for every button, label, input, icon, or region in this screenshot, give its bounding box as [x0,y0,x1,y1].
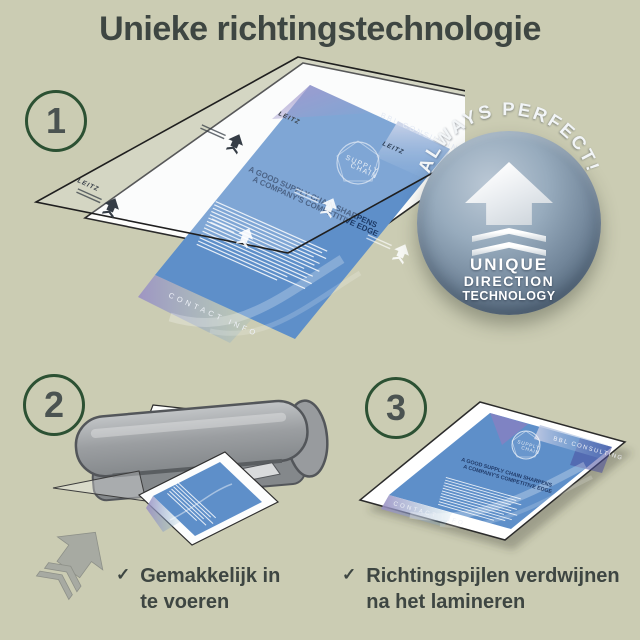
supply-chain-logo: SUPPLY CHAIN [512,431,541,459]
infographic: Unieke richtingstechnologie 1 2 3 [0,0,640,640]
feed-arrow-icon [32,516,118,606]
caption-text: Richtingspijlen verdwijnen na het lamine… [366,563,619,615]
step-2-number: 2 [44,384,64,426]
step-1-illustration: BBL CONSULTING SUPPLY CHAIN A GOOD SUPPL… [20,55,465,365]
caption-easy-feed: ✓ Gemakkelijk in te voeren [116,563,331,615]
caption-arrows-disappear: ✓ Richtingspijlen verdwijnen na het lami… [342,563,637,615]
badge-line-direction: DIRECTION [417,273,601,289]
step-2-badge: 2 [23,374,85,436]
page-title: Unieke richtingstechnologie [0,10,640,49]
check-icon: ✓ [116,565,130,617]
step-3-number: 3 [386,387,406,429]
check-icon: ✓ [342,565,356,617]
step-1-number: 1 [46,100,66,142]
always-perfect-badge: ALWAYS PERFECT! UNIQUE DIRECTION TECHNOL… [417,131,601,315]
step-1-badge: 1 [25,90,87,152]
badge-line-technology: TECHNOLOGY [417,289,601,303]
badge-line-unique: UNIQUE [417,255,601,275]
caption-text: Gemakkelijk in te voeren [140,563,280,615]
step-3-badge: 3 [365,377,427,439]
